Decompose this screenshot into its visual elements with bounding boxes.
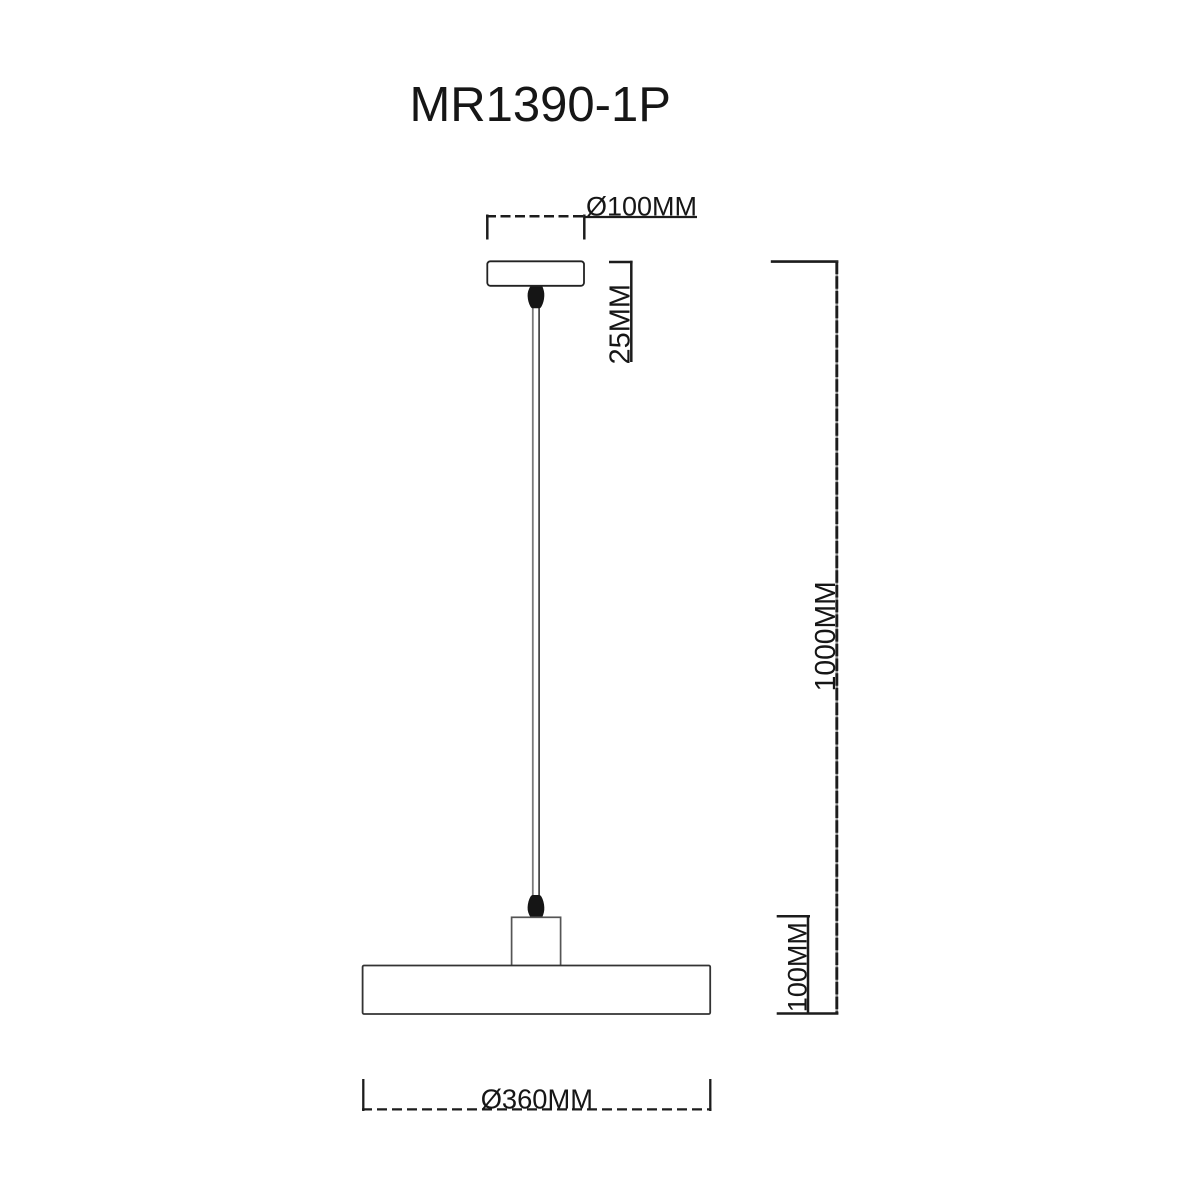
svg-text:1000MM: 1000MM [809,581,841,691]
svg-text:25MM: 25MM [605,284,637,365]
svg-text:Ø360MM: Ø360MM [481,1084,593,1115]
svg-text:Ø100MM: Ø100MM [586,192,697,222]
svg-text:100MM: 100MM [783,922,813,1012]
svg-text:MR1390-1P: MR1390-1P [409,78,670,132]
